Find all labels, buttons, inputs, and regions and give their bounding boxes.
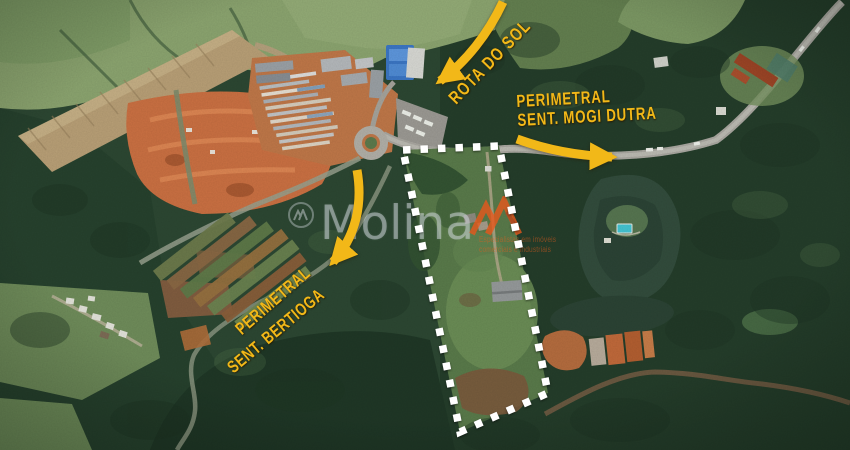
mogi-dutra-arrow-icon	[517, 139, 612, 157]
property-boundary	[403, 146, 548, 432]
annotation-layer	[0, 0, 850, 450]
bertioga-arrow-icon	[333, 170, 359, 262]
label-perimetral-mogi-dutra: PERIMETRAL SENT. MOGI DUTRA	[516, 85, 657, 130]
satellite-map: Molina Especialistas em imóveis comercia…	[0, 0, 850, 450]
